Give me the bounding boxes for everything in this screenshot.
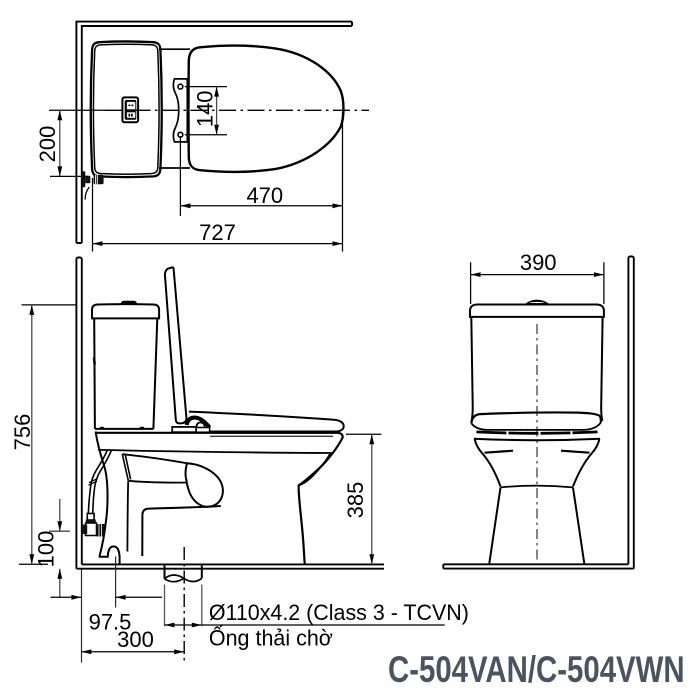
svg-text:300: 300 [117,627,154,652]
svg-text:385: 385 [343,482,368,519]
svg-text:100: 100 [34,531,59,568]
svg-text:390: 390 [520,250,557,275]
svg-text:C-504VAN/C-504VWN: C-504VAN/C-504VWN [388,649,685,690]
svg-text:727: 727 [199,220,236,245]
svg-text:756: 756 [10,414,35,451]
svg-text:140: 140 [192,90,217,127]
svg-text:200: 200 [35,126,60,163]
svg-text:470: 470 [246,183,283,208]
svg-text:Ống thải chờ: Ống thải chờ [209,625,333,651]
svg-text:Ø110x4.2 (Class 3 - TCVN): Ø110x4.2 (Class 3 - TCVN) [209,600,469,625]
